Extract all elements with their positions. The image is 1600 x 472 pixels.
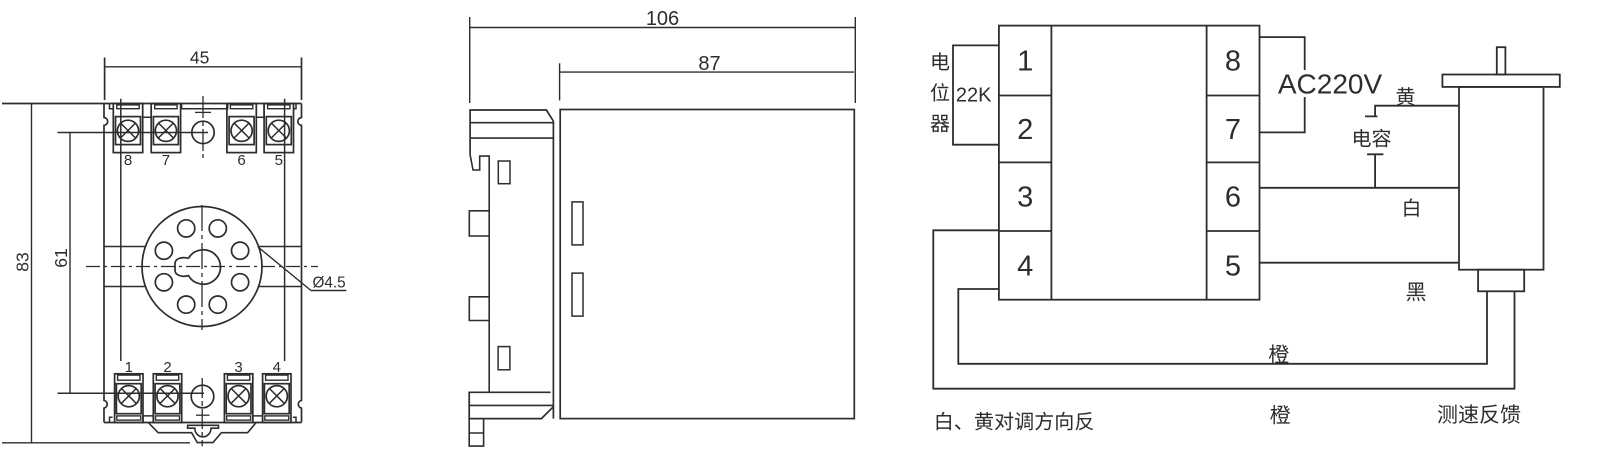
svg-text:AC220V: AC220V bbox=[1278, 69, 1383, 100]
svg-text:61: 61 bbox=[51, 248, 71, 267]
svg-text:1: 1 bbox=[125, 359, 133, 376]
svg-text:1: 1 bbox=[1017, 46, 1033, 78]
svg-text:8: 8 bbox=[124, 152, 132, 169]
svg-text:2: 2 bbox=[163, 359, 171, 376]
svg-text:3: 3 bbox=[1017, 182, 1033, 214]
svg-text:Ø4.5: Ø4.5 bbox=[313, 275, 346, 292]
svg-text:6: 6 bbox=[237, 152, 245, 169]
svg-text:106: 106 bbox=[646, 8, 679, 30]
svg-text:6: 6 bbox=[1225, 182, 1241, 214]
svg-text:4: 4 bbox=[273, 359, 281, 376]
svg-text:3: 3 bbox=[234, 359, 242, 376]
svg-text:7: 7 bbox=[162, 152, 170, 169]
svg-text:45: 45 bbox=[190, 48, 209, 68]
svg-text:83: 83 bbox=[13, 252, 33, 271]
svg-text:4: 4 bbox=[1017, 250, 1033, 282]
svg-text:8: 8 bbox=[1225, 46, 1241, 78]
svg-text:22K: 22K bbox=[956, 84, 992, 106]
svg-text:7: 7 bbox=[1225, 114, 1241, 146]
svg-text:5: 5 bbox=[275, 152, 283, 169]
svg-text:5: 5 bbox=[1225, 250, 1241, 282]
svg-text:2: 2 bbox=[1017, 114, 1033, 146]
